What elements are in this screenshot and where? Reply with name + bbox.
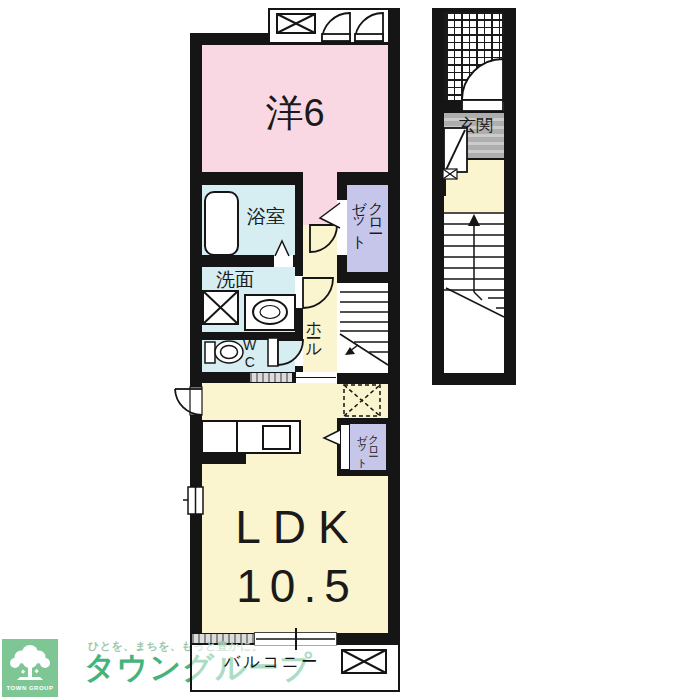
wall [337, 373, 388, 384]
closet-upper-label: クロー ゼット [349, 191, 387, 269]
wall [432, 178, 446, 196]
entry-porch-void [444, 10, 504, 102]
closet-upper-label-col1: クロー [369, 191, 384, 225]
entrance-floor [444, 160, 504, 213]
closet-ldk-label: クロー ゼット [352, 427, 384, 469]
washroom-door-gap [295, 276, 303, 308]
wall [504, 8, 516, 385]
bathroom-door-gap [274, 255, 293, 267]
sliding-door-sill [250, 373, 292, 382]
tree-icon [2, 639, 58, 685]
room-washroom-label: 洗面 [216, 270, 254, 290]
closet-upper-label-col2: ゼット [352, 191, 367, 242]
wall [337, 172, 388, 185]
room-western-label: 洋6 [202, 94, 388, 134]
closet-ldk-label-col2: ゼット [357, 427, 368, 463]
wall [388, 8, 400, 44]
ldk-label: LDK [202, 503, 394, 551]
room-western-nook [303, 172, 337, 225]
wall [292, 372, 296, 383]
balcony-label: バルコニー [224, 654, 321, 671]
floor-plan: ひとを、まちを、もっと豊かに。 タウングループ TOWN GROUP [0, 0, 700, 700]
upper-balcony-strip [268, 8, 400, 44]
balcony: バルコニー [190, 645, 400, 692]
ldk-area-label: 10.5 [202, 562, 392, 610]
closet-ldk-door-panel [340, 424, 350, 470]
stairs-entrance [444, 213, 504, 373]
stairs-main [337, 283, 388, 373]
town-group-logo: TOWN GROUP [2, 639, 58, 697]
wall [432, 373, 516, 385]
room-bathroom-label: 浴室 [247, 207, 285, 227]
wall [202, 172, 303, 185]
wall [190, 33, 202, 645]
wall [337, 272, 388, 283]
room-hall-label: ホール [305, 310, 322, 398]
entrance-label: 玄関 [459, 117, 493, 135]
wc-door-gap [295, 340, 303, 366]
room-wc-label: WC [242, 337, 257, 371]
wall [432, 8, 444, 385]
logo-caption: TOWN GROUP [2, 685, 58, 691]
wall [388, 33, 400, 645]
balcony-window-sill-right [255, 633, 336, 645]
closet-ldk-label-col1: クロー [369, 427, 380, 451]
closet-door-gap [337, 200, 347, 255]
